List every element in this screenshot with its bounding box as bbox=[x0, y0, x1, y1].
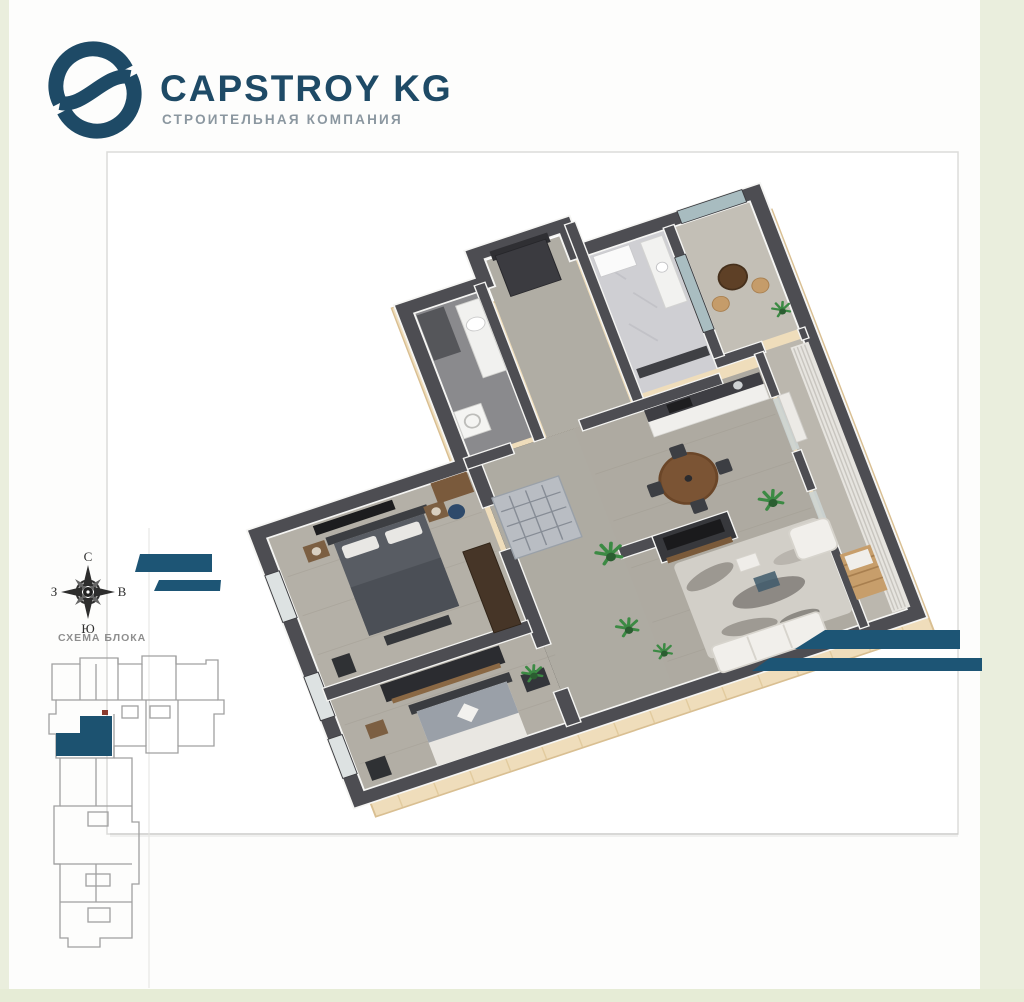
accent-bar-left-2 bbox=[154, 580, 221, 591]
schematic-label: СХЕМА БЛОКА bbox=[58, 632, 146, 644]
compass-north-label: С bbox=[84, 549, 93, 564]
unit-marker-dot bbox=[102, 710, 108, 715]
card-shadow bbox=[110, 833, 958, 837]
page: CAPSTROY KG СТРОИТЕЛЬНАЯ КОМПАНИЯ bbox=[0, 0, 1024, 1002]
brand-tagline: СТРОИТЕЛЬНАЯ КОМПАНИЯ bbox=[162, 112, 403, 127]
compass-east-label: В bbox=[118, 584, 127, 599]
accent-bar-right-2 bbox=[752, 658, 982, 671]
brand-name: CAPSTROY KG bbox=[160, 68, 453, 109]
compass-west-label: З bbox=[51, 584, 58, 599]
accent-bar-left-1 bbox=[135, 554, 212, 572]
